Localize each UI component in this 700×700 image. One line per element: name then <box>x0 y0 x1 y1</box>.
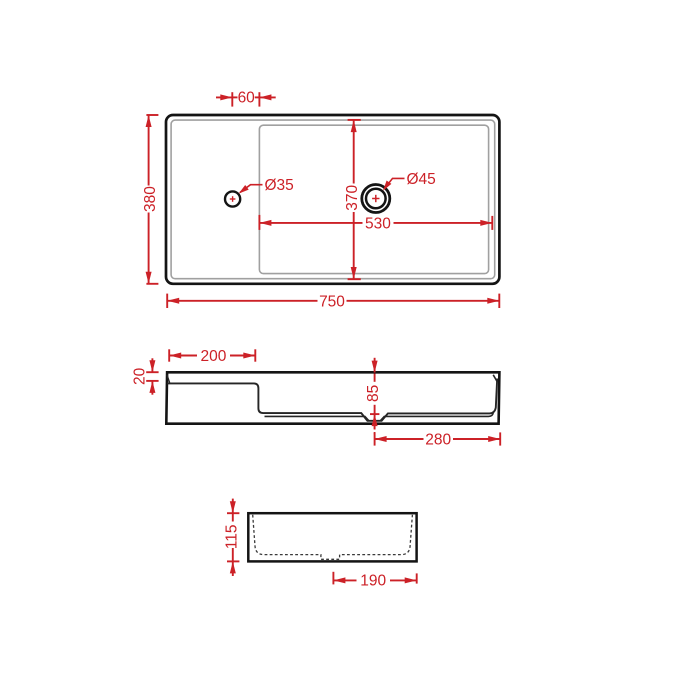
svg-text:115: 115 <box>223 524 240 549</box>
svg-text:750: 750 <box>319 294 345 311</box>
svg-text:370: 370 <box>344 184 361 210</box>
svg-text:60: 60 <box>238 89 256 106</box>
svg-text:Ø45: Ø45 <box>407 171 436 188</box>
svg-text:85: 85 <box>365 385 382 402</box>
svg-text:20: 20 <box>132 367 149 385</box>
svg-text:380: 380 <box>142 186 159 212</box>
svg-text:530: 530 <box>365 216 391 233</box>
svg-text:190: 190 <box>360 572 386 589</box>
svg-text:280: 280 <box>425 432 451 449</box>
svg-text:200: 200 <box>200 348 226 365</box>
svg-text:Ø35: Ø35 <box>265 177 294 194</box>
